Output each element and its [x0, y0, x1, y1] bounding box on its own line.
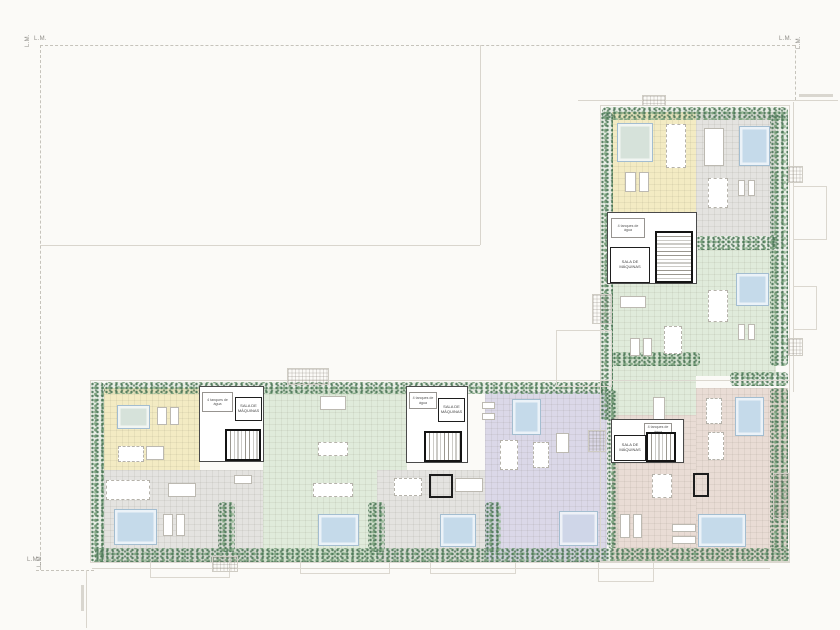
annotation-line [578, 100, 838, 101]
table-with-chairs [106, 480, 150, 500]
lounger [738, 324, 745, 340]
table-with-chairs [313, 483, 353, 497]
lounger [643, 338, 653, 356]
stair-core: 4 tanques de águaSALA DE MÁQUINAS [611, 419, 684, 463]
trellis-grid [287, 368, 329, 385]
floorplan-canvas: 4 tanques de águaSALA DE MÁQUINAS4 tanqu… [0, 0, 840, 630]
lounger [163, 514, 173, 536]
lounger [170, 407, 180, 425]
terrace-furniture [482, 402, 495, 409]
pool [117, 405, 150, 429]
terrace-furniture [672, 536, 696, 544]
machine-room: SALA DE MÁQUINAS [438, 398, 465, 422]
pool [440, 514, 476, 547]
illegible-annotation [81, 585, 84, 611]
table-with-chairs [500, 440, 518, 470]
table-with-chairs [652, 474, 672, 498]
stair-core: 4 tanques de águaSALA DE MÁQUINAS [607, 212, 697, 284]
annotation-line [480, 45, 481, 245]
stair [424, 431, 462, 462]
lounger [630, 338, 640, 356]
table-with-chairs [708, 432, 724, 460]
lounger-pair [620, 514, 642, 538]
terrace-furniture [620, 296, 646, 308]
table-with-chairs [394, 478, 422, 496]
annotation-line [86, 570, 87, 628]
lounger-pair [157, 407, 179, 425]
pool [318, 514, 359, 546]
pool [559, 511, 598, 546]
property-line-label: L.M. [779, 36, 792, 42]
lounger-pair [163, 514, 185, 536]
lounger-pair [738, 180, 755, 196]
pool [512, 399, 541, 435]
pool [736, 273, 769, 306]
lounger [748, 324, 755, 340]
property-line [40, 45, 795, 46]
lounger [620, 514, 630, 538]
pool [617, 123, 653, 162]
terrace-furniture [482, 413, 495, 420]
property-line [40, 45, 41, 570]
terrace-furniture [234, 475, 252, 484]
trellis-grid [788, 338, 803, 356]
lower-floor-outline [430, 562, 516, 574]
annotation-line [40, 245, 480, 246]
table-with-chairs [664, 326, 682, 354]
pool [735, 397, 764, 436]
vent-wall [429, 474, 453, 498]
water-tanks-room: 4 tanques de água [611, 218, 645, 238]
table-with-chairs [708, 290, 728, 322]
stair [646, 432, 676, 462]
lounger [639, 172, 650, 192]
stair [225, 429, 261, 461]
table-with-chairs [666, 124, 686, 168]
illegible-annotation [799, 94, 833, 97]
table-with-chairs [706, 398, 722, 424]
machine-room: SALA DE MÁQUINAS [610, 247, 650, 283]
trellis-grid [212, 556, 238, 572]
lounger [748, 180, 755, 196]
terrace-furniture [455, 478, 483, 492]
table-with-chairs [318, 442, 348, 456]
lounger [633, 514, 643, 538]
terrace-furniture [704, 128, 724, 166]
trellis-grid [588, 430, 606, 452]
vent-wall [693, 473, 709, 497]
terrace-furniture [320, 396, 346, 410]
terrace-furniture [653, 397, 665, 421]
property-line-label: L.M. [37, 554, 43, 567]
terrace-furniture [672, 524, 696, 532]
terrace-furniture [168, 483, 196, 497]
trellis-grid [773, 473, 789, 519]
pool [739, 126, 770, 166]
trellis-grid [642, 95, 666, 106]
property-line [795, 45, 796, 100]
trellis-grid [788, 166, 803, 183]
terrace-furniture [556, 433, 569, 453]
property-line-label: L.M. [796, 36, 802, 49]
pool [114, 509, 157, 545]
lower-floor-outline [598, 562, 654, 582]
stair [655, 231, 693, 283]
lower-floor-outline [556, 330, 612, 387]
lower-floor-outline [793, 286, 817, 330]
property-line-label: L.M. [25, 34, 31, 47]
lower-floor-outline [300, 562, 390, 574]
trellis-grid [592, 294, 612, 324]
pool [698, 514, 746, 547]
lower-floor-outline [793, 186, 827, 240]
stair-core: 4 tanques de águaSALA DE MÁQUINAS [199, 386, 264, 462]
lounger-pair [630, 338, 652, 356]
lounger [157, 407, 167, 425]
table-with-chairs [118, 446, 144, 462]
property-line-label: L.M. [34, 36, 47, 42]
table-with-chairs [533, 442, 549, 468]
water-tanks-room: 4 tanques de água [202, 392, 233, 412]
terrace-furniture [146, 446, 164, 460]
lounger [738, 180, 745, 196]
water-tanks-room: 4 tanques de água [409, 392, 437, 409]
machine-room: SALA DE MÁQUINAS [235, 397, 262, 421]
stair-core: 4 tanques de águaSALA DE MÁQUINAS [406, 386, 468, 463]
lounger [176, 514, 186, 536]
lounger-pair [738, 324, 755, 340]
table-with-chairs [708, 178, 728, 208]
machine-room: SALA DE MÁQUINAS [614, 435, 646, 461]
lounger [625, 172, 636, 192]
lounger-pair [625, 172, 649, 192]
